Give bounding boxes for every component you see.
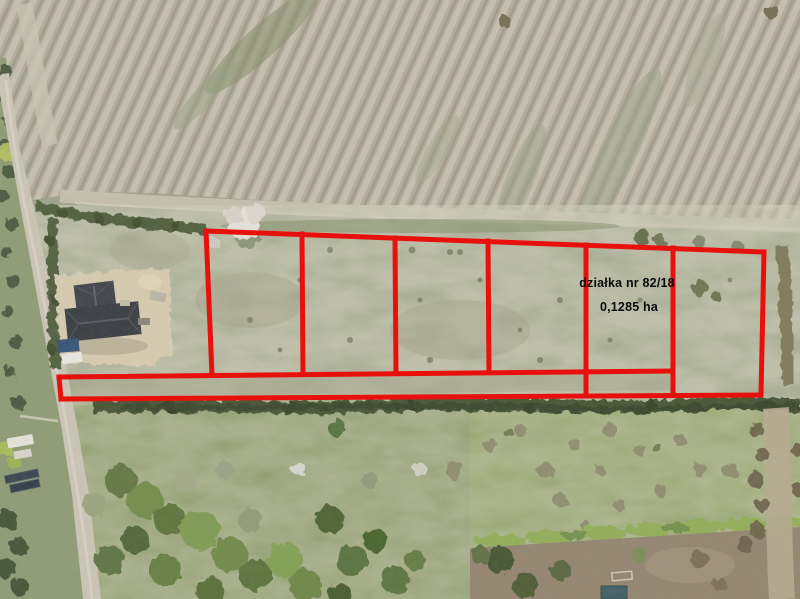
divider-1 — [302, 234, 303, 374]
scene-svg — [0, 0, 800, 599]
divider-2 — [395, 238, 396, 373]
access-strip-left-cap — [59, 377, 61, 399]
divider-3 — [488, 241, 489, 372]
photo-grain — [0, 0, 800, 599]
boundary-right — [761, 252, 764, 395]
parcel-area-label: 0,1285 ha — [600, 300, 658, 314]
aerial-photo: działka nr 82/18 0,1285 ha — [0, 0, 800, 599]
parcel-number-label: działka nr 82/18 — [579, 276, 675, 290]
